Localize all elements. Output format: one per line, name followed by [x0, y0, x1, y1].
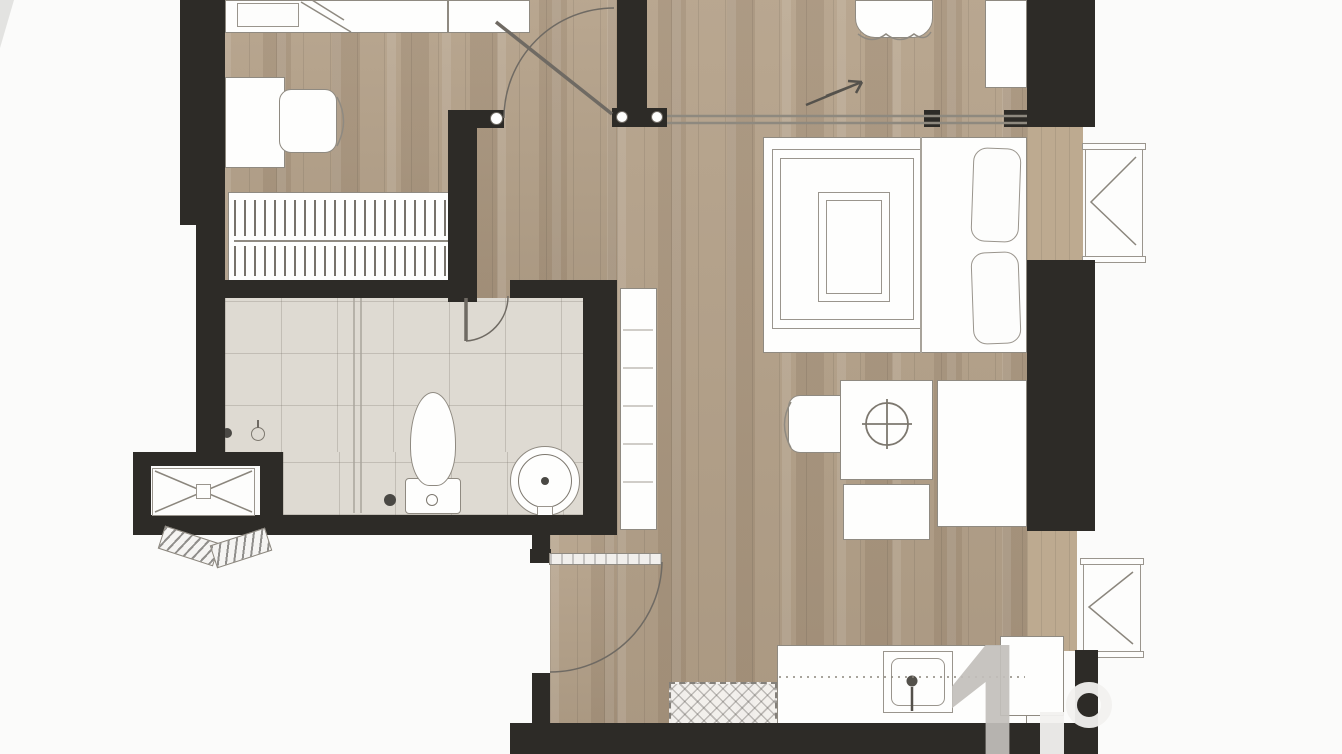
ac-unit-upper-right: [1085, 148, 1143, 258]
wall-cabinet: [985, 0, 1027, 88]
entry-door-leaf: [549, 553, 662, 565]
desk: [225, 77, 285, 168]
wall-left-bathroom: [196, 225, 225, 455]
entry-door-hinge-post: [530, 549, 551, 563]
basin-drain-dot: [541, 477, 549, 485]
duvet-inner-panel-line: [826, 200, 882, 294]
bathroom-tile-floor-upper: [225, 298, 583, 458]
ac-ledge-upper: [1027, 127, 1083, 260]
office-chair: [279, 89, 337, 153]
wall-bathroom-right: [583, 280, 617, 535]
living-master-wood-floor: [617, 0, 1027, 723]
wall-bedroom2-right: [448, 112, 477, 302]
tv-shelf-console: [620, 288, 657, 530]
refrigerator-cabinet: [1000, 636, 1064, 716]
wardrobe-hanging-clothes-top-row: [234, 200, 456, 236]
wall-niche-left: [133, 452, 151, 535]
wall-bathroom-top-left: [196, 280, 463, 298]
toilet-flush-button: [426, 494, 438, 506]
bed-headboard-line: [920, 137, 922, 353]
floor-plan-canvas: [0, 0, 1342, 754]
wall-bottom: [510, 723, 1098, 754]
ac-unit-upper-bracket-top: [1082, 143, 1146, 150]
wall-right-upper: [1027, 0, 1095, 127]
ac-condenser-center-block: [196, 484, 211, 499]
wardrobe-hanging-clothes-bottom-row: [234, 246, 456, 276]
wall-tap: [251, 427, 265, 441]
wall-niche-right-stub: [260, 452, 283, 515]
wall-entry-lower: [532, 673, 550, 728]
built-under-appliance: [669, 682, 777, 729]
pillow-top: [970, 147, 1021, 243]
wall-bathroom-bottom: [151, 515, 617, 535]
door-stop-bedroom2: [490, 112, 503, 125]
door-stop-partition-left: [616, 111, 628, 123]
toilet-bowl: [410, 392, 456, 486]
dressing-table: [840, 380, 933, 480]
watermark-bar-glyph: [1040, 712, 1064, 754]
wall-left-upper: [180, 0, 225, 225]
pillow-bottom: [970, 251, 1021, 345]
sliding-track-end-post: [1004, 110, 1028, 127]
counter-sink-basin: [891, 658, 945, 706]
sliding-track-junction-post: [924, 110, 940, 127]
wall-right-middle: [1027, 260, 1095, 531]
dressing-stool: [843, 484, 930, 540]
bed-frame-line: [447, 0, 449, 33]
ac-unit-lower-bracket-top: [1080, 558, 1144, 565]
wardrobe-rail-line: [234, 240, 456, 242]
master-wardrobe: [937, 380, 1027, 527]
ac-ledge-lower: [1027, 531, 1077, 651]
watermark-ring-glyph: [1066, 682, 1112, 728]
bed-pillow: [237, 3, 299, 27]
scalloped-armchair: [855, 0, 933, 38]
door-stop-partition-right: [651, 111, 663, 123]
watermark-corner-sliver: [0, 0, 14, 48]
toilet-floor-drain: [384, 494, 396, 506]
wall-partition-top: [617, 0, 647, 112]
ac-unit-lower-right: [1083, 563, 1141, 653]
